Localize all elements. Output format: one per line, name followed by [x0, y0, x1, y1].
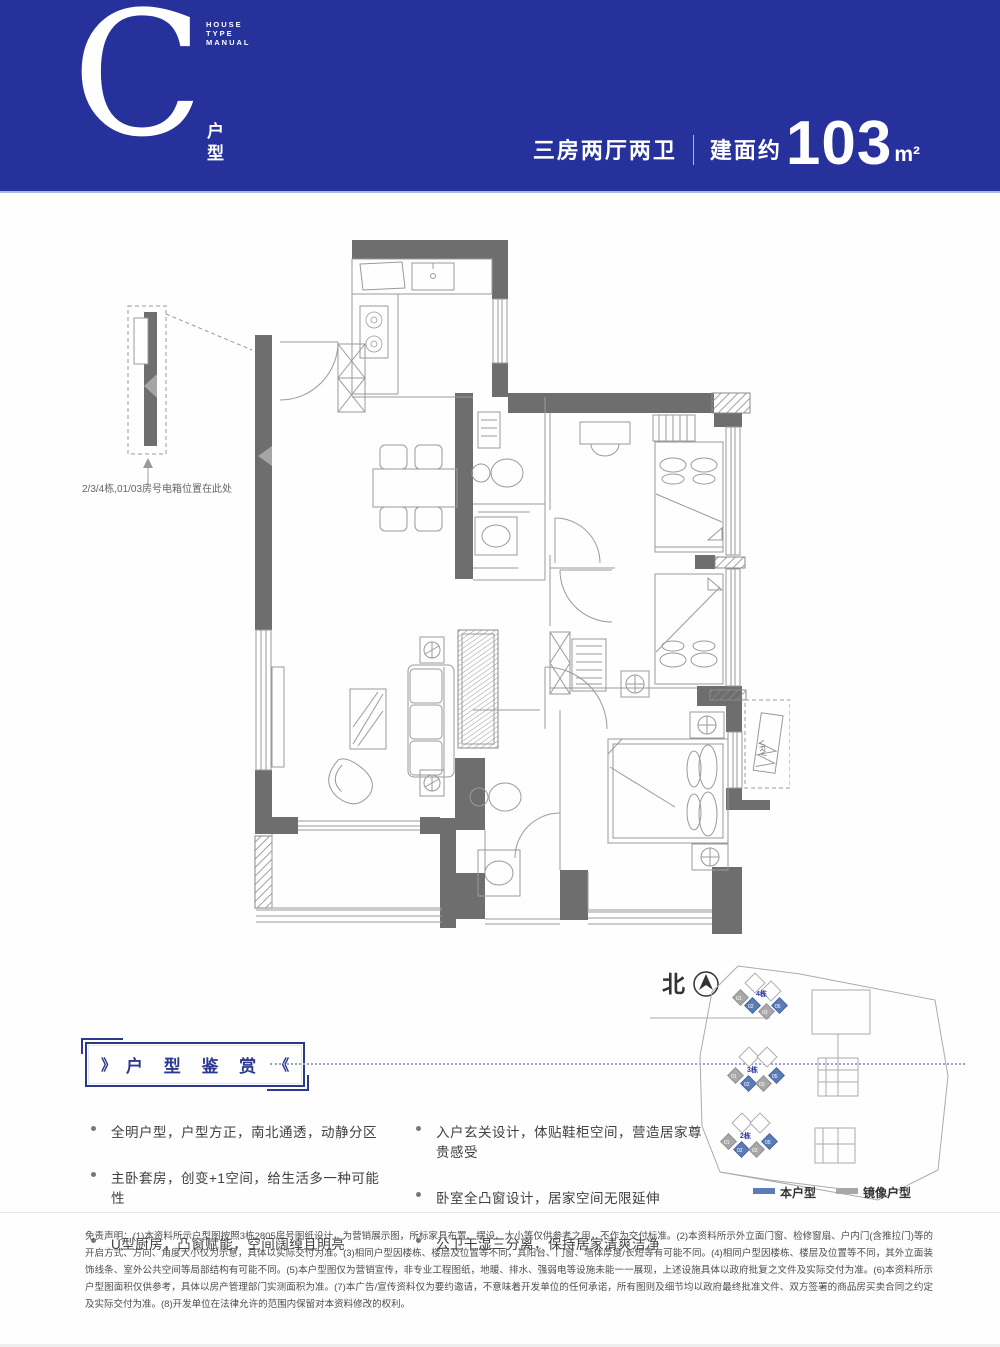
- svg-text:03: 03: [759, 1082, 765, 1088]
- bedroom-b: [550, 574, 723, 697]
- building-label: 3栋: [747, 1065, 758, 1074]
- guest-bathroom: [472, 412, 530, 555]
- master-bath-door: [515, 813, 560, 858]
- bullet-icon: [416, 1192, 421, 1197]
- bedroom-b-door: [560, 570, 612, 622]
- dining-area: [373, 445, 457, 531]
- legend-label-current: 本户型: [780, 1185, 816, 1200]
- area-value: 103: [786, 118, 892, 171]
- feature-item: 全明户型，户型方正，南北通透，动静分区: [85, 1121, 390, 1141]
- svg-text:02: 02: [737, 1148, 743, 1154]
- kitchen: [338, 259, 492, 412]
- footer-divider: [0, 1212, 1000, 1213]
- bullet-icon: [416, 1126, 421, 1131]
- svg-text:01: 01: [724, 1140, 730, 1146]
- svg-text:03: 03: [762, 1010, 768, 1016]
- floor-plan: 2/3/4栋,01/03房号电箱位置在此处 VRV: [60, 222, 790, 1002]
- vrv-unit: [745, 700, 790, 788]
- svg-text:北: 北: [662, 971, 685, 997]
- svg-text:01: 01: [736, 996, 742, 1002]
- svg-text:03: 03: [752, 1148, 758, 1154]
- master-door: [545, 667, 607, 729]
- disclaimer-text: 免责声明：(1)本资料所示户型图按照3栋2805房号图纸设计，为营销展示图，所标…: [85, 1228, 933, 1313]
- legend-swatch-current: [753, 1188, 775, 1194]
- north-indicator: 北: [662, 971, 718, 997]
- plan-linework: [128, 240, 790, 934]
- entry-door: [280, 342, 338, 400]
- area-prefix: 建面约: [710, 133, 782, 171]
- area-unit: m²: [894, 143, 920, 171]
- svg-text:05: 05: [772, 1074, 778, 1080]
- master-bedroom: [608, 712, 728, 870]
- bedroom-a: [580, 415, 723, 552]
- building-label: 4栋: [756, 989, 767, 998]
- legend-swatch-mirror: [836, 1188, 858, 1194]
- spec-divider: [693, 135, 694, 165]
- house-type-page: C HOUSE TYPE MANUAL 户型 三房两厅两卫 建面约 103 m²: [0, 0, 1000, 1347]
- room-spec: 三房两厅两卫: [533, 133, 677, 171]
- site-plan: 北 01 02 03 05 4栋: [650, 958, 980, 1228]
- svg-text:05: 05: [775, 1004, 781, 1010]
- electric-box-callout: [128, 306, 272, 486]
- building-cluster-2: 01 02 03 05 2栋: [721, 1113, 778, 1157]
- svg-text:02: 02: [748, 1004, 754, 1010]
- header-banner: C HOUSE TYPE MANUAL 户型 三房两厅两卫 建面约 103 m²: [0, 0, 1000, 193]
- building-cluster-4: 01 02 03 05 4栋: [733, 973, 788, 1019]
- house-type-letter: C: [72, 0, 204, 178]
- bedroom-a-door: [555, 518, 600, 563]
- bullet-icon: [91, 1172, 96, 1177]
- site-boundary: [650, 966, 948, 1200]
- svg-text:01: 01: [731, 1074, 737, 1080]
- chevron-right-icon: 》: [101, 1054, 116, 1075]
- svg-text:02: 02: [744, 1082, 750, 1088]
- building-label: 2栋: [740, 1131, 751, 1140]
- house-type-label: 户型: [201, 122, 226, 166]
- manual-caption: HOUSE TYPE MANUAL: [206, 20, 251, 47]
- building-cluster-3: 01 02 03 05 3栋: [728, 1047, 785, 1091]
- feature-item: 主卧套房，创变+1空间，给生活多一种可能性: [85, 1167, 390, 1207]
- living-room: [272, 637, 454, 812]
- bullet-icon: [91, 1126, 96, 1131]
- header-spec-group: 三房两厅两卫 建面约 103 m²: [533, 118, 920, 171]
- legend-label-mirror: 镜像户型: [863, 1185, 911, 1200]
- electric-box-note: 2/3/4栋,01/03房号电箱位置在此处: [82, 482, 232, 495]
- walkin-closet: [458, 630, 498, 748]
- features-title: 户 型 鉴 赏: [126, 1052, 264, 1077]
- svg-text:05: 05: [765, 1140, 771, 1146]
